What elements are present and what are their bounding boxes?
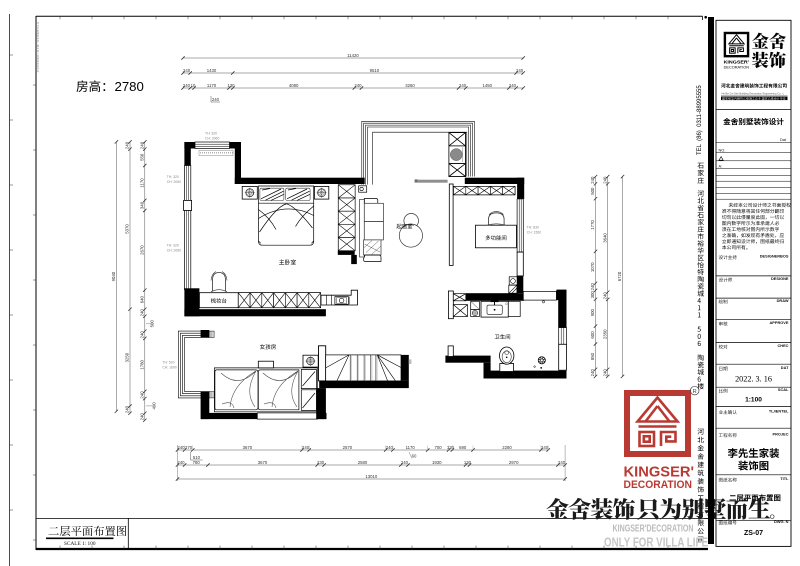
svg-text:240: 240 xyxy=(459,83,467,88)
svg-text:DECORATION: DECORATION xyxy=(624,479,693,491)
svg-text:3670: 3670 xyxy=(258,460,268,465)
svg-text:240: 240 xyxy=(509,83,517,88)
svg-text:240: 240 xyxy=(139,413,144,421)
svg-text:9040: 9040 xyxy=(111,271,116,281)
svg-text:KINGSER'DECORATION: KINGSER'DECORATION xyxy=(613,524,694,535)
svg-text:2280: 2280 xyxy=(502,445,512,450)
svg-text:PROJEC: PROJEC xyxy=(773,431,789,436)
svg-text:340: 340 xyxy=(139,201,144,209)
svg-text:KINGSER': KINGSER' xyxy=(624,464,695,481)
svg-text:240: 240 xyxy=(139,309,144,317)
svg-text:240: 240 xyxy=(558,460,566,465)
svg-text:DECORATION: DECORATION xyxy=(724,65,750,70)
svg-text:240: 240 xyxy=(177,460,185,465)
svg-text:300: 300 xyxy=(590,291,595,299)
svg-text:850: 850 xyxy=(590,352,595,360)
svg-text:TEL (86) 0311-88995555: TEL (86) 0311-88995555 xyxy=(697,85,703,155)
svg-text:1170: 1170 xyxy=(406,445,416,450)
svg-text:690: 690 xyxy=(459,445,467,450)
svg-text:240: 240 xyxy=(139,331,144,339)
svg-text:490: 490 xyxy=(152,402,157,410)
svg-text:240: 240 xyxy=(602,176,607,184)
svg-text:130: 130 xyxy=(227,83,235,88)
svg-text:240: 240 xyxy=(602,369,607,377)
svg-text:ZS-07: ZS-07 xyxy=(744,530,763,537)
svg-text:3250: 3250 xyxy=(125,352,130,362)
svg-text:He Bei Jin She Building Decora: He Bei Jin She Building Decoration Engin… xyxy=(722,92,785,96)
svg-text:TH: 320: TH: 320 xyxy=(167,244,179,248)
svg-text:500: 500 xyxy=(150,320,155,328)
svg-text:1170: 1170 xyxy=(139,178,144,188)
svg-text:CHEC: CHEC xyxy=(777,343,788,348)
svg-text:2580: 2580 xyxy=(358,460,368,465)
svg-text:3640: 3640 xyxy=(602,233,607,243)
svg-text:CH: 1560: CH: 1560 xyxy=(527,231,541,235)
svg-text:640: 640 xyxy=(139,296,144,304)
svg-text:SCAL: SCAL xyxy=(778,387,789,392)
svg-text:240: 240 xyxy=(354,83,362,88)
svg-text:240: 240 xyxy=(125,141,130,149)
svg-text:270: 270 xyxy=(185,445,193,450)
svg-text:240: 240 xyxy=(183,83,191,88)
svg-text:240: 240 xyxy=(125,405,130,413)
svg-text:CH: 2060: CH: 2060 xyxy=(167,180,181,184)
svg-text:2022. 3. 16: 2022. 3. 16 xyxy=(735,375,772,384)
svg-text:240: 240 xyxy=(139,391,144,399)
svg-text:230: 230 xyxy=(317,460,325,465)
svg-text:NO.: NO. xyxy=(719,147,726,152)
svg-text:TH: 320: TH: 320 xyxy=(167,175,179,179)
svg-text:TH: 520: TH: 520 xyxy=(162,361,174,365)
svg-text:CH: 2060: CH: 2060 xyxy=(167,249,181,253)
svg-text:APPROVE: APPROVE xyxy=(769,320,788,325)
svg-text:ONLY FOR VILLA LIFE: ONLY FOR VILLA LIFE xyxy=(604,536,708,550)
svg-text:240: 240 xyxy=(590,176,595,184)
svg-text:TITL: TITL xyxy=(780,476,789,481)
svg-text:DRAW: DRAW xyxy=(777,298,789,303)
svg-text:DWG. N: DWG. N xyxy=(774,519,789,524)
svg-text:1070: 1070 xyxy=(590,262,595,272)
svg-text:1430: 1430 xyxy=(207,68,217,73)
svg-text:A:: A: xyxy=(719,164,723,169)
svg-text:11420: 11420 xyxy=(347,53,359,58)
svg-text:2970: 2970 xyxy=(509,460,519,465)
svg-text:600: 600 xyxy=(590,331,595,339)
svg-text:1770: 1770 xyxy=(590,220,595,230)
svg-text:TH: 830: TH: 830 xyxy=(527,226,539,230)
svg-text:10: 10 xyxy=(191,83,196,88)
svg-text:1780: 1780 xyxy=(139,360,144,370)
svg-text:240: 240 xyxy=(602,292,607,300)
svg-text:9510: 9510 xyxy=(370,68,380,73)
svg-text:TL/IENTEL: TL/IENTEL xyxy=(769,408,789,413)
svg-text:5370: 5370 xyxy=(125,224,130,234)
svg-text:13010: 13010 xyxy=(365,474,378,479)
svg-text:1170: 1170 xyxy=(207,83,217,88)
svg-text:1:100: 1:100 xyxy=(745,397,762,404)
svg-text:R: R xyxy=(693,389,697,395)
svg-text:240: 240 xyxy=(590,369,595,377)
svg-text:DESIGNERBOS: DESIGNERBOS xyxy=(760,254,789,259)
svg-text:240: 240 xyxy=(139,141,144,149)
svg-text:DESIGNE: DESIGNE xyxy=(771,276,789,281)
svg-text:4080: 4080 xyxy=(289,83,299,88)
svg-text:SCALE 1: 100: SCALE 1: 100 xyxy=(64,541,96,547)
svg-text:DAT: DAT xyxy=(781,365,789,370)
svg-text:CH: 2060: CH: 2060 xyxy=(205,137,219,141)
svg-text:3260: 3260 xyxy=(405,83,415,88)
svg-text:Dat: Dat xyxy=(780,137,787,142)
svg-text:CH: 1690: CH: 1690 xyxy=(162,366,176,370)
svg-text:240: 240 xyxy=(386,445,394,450)
svg-text:60: 60 xyxy=(412,454,417,459)
svg-text:TH: 320: TH: 320 xyxy=(205,132,217,136)
svg-text:550: 550 xyxy=(139,153,144,161)
svg-text:240: 240 xyxy=(212,97,220,102)
svg-text:900: 900 xyxy=(590,309,595,317)
svg-text:240: 240 xyxy=(183,68,191,73)
svg-text:3670: 3670 xyxy=(243,445,253,450)
svg-text:1930: 1930 xyxy=(432,460,442,465)
svg-text:780: 780 xyxy=(193,460,201,465)
svg-text:500: 500 xyxy=(590,187,595,195)
svg-text:240: 240 xyxy=(302,445,310,450)
svg-text:700: 700 xyxy=(435,445,443,450)
svg-text:240: 240 xyxy=(590,283,595,291)
svg-text:2570: 2570 xyxy=(343,445,353,450)
svg-text:6720: 6720 xyxy=(617,271,622,281)
svg-text:240: 240 xyxy=(516,68,524,73)
svg-text:130: 130 xyxy=(464,460,472,465)
svg-text:130: 130 xyxy=(447,445,455,450)
svg-text:2670: 2670 xyxy=(139,245,144,255)
svg-text:2780: 2780 xyxy=(115,79,144,94)
svg-text:2350: 2350 xyxy=(602,329,607,339)
svg-text:240: 240 xyxy=(401,460,409,465)
svg-text:240: 240 xyxy=(541,445,549,450)
svg-text:1450: 1450 xyxy=(483,83,493,88)
